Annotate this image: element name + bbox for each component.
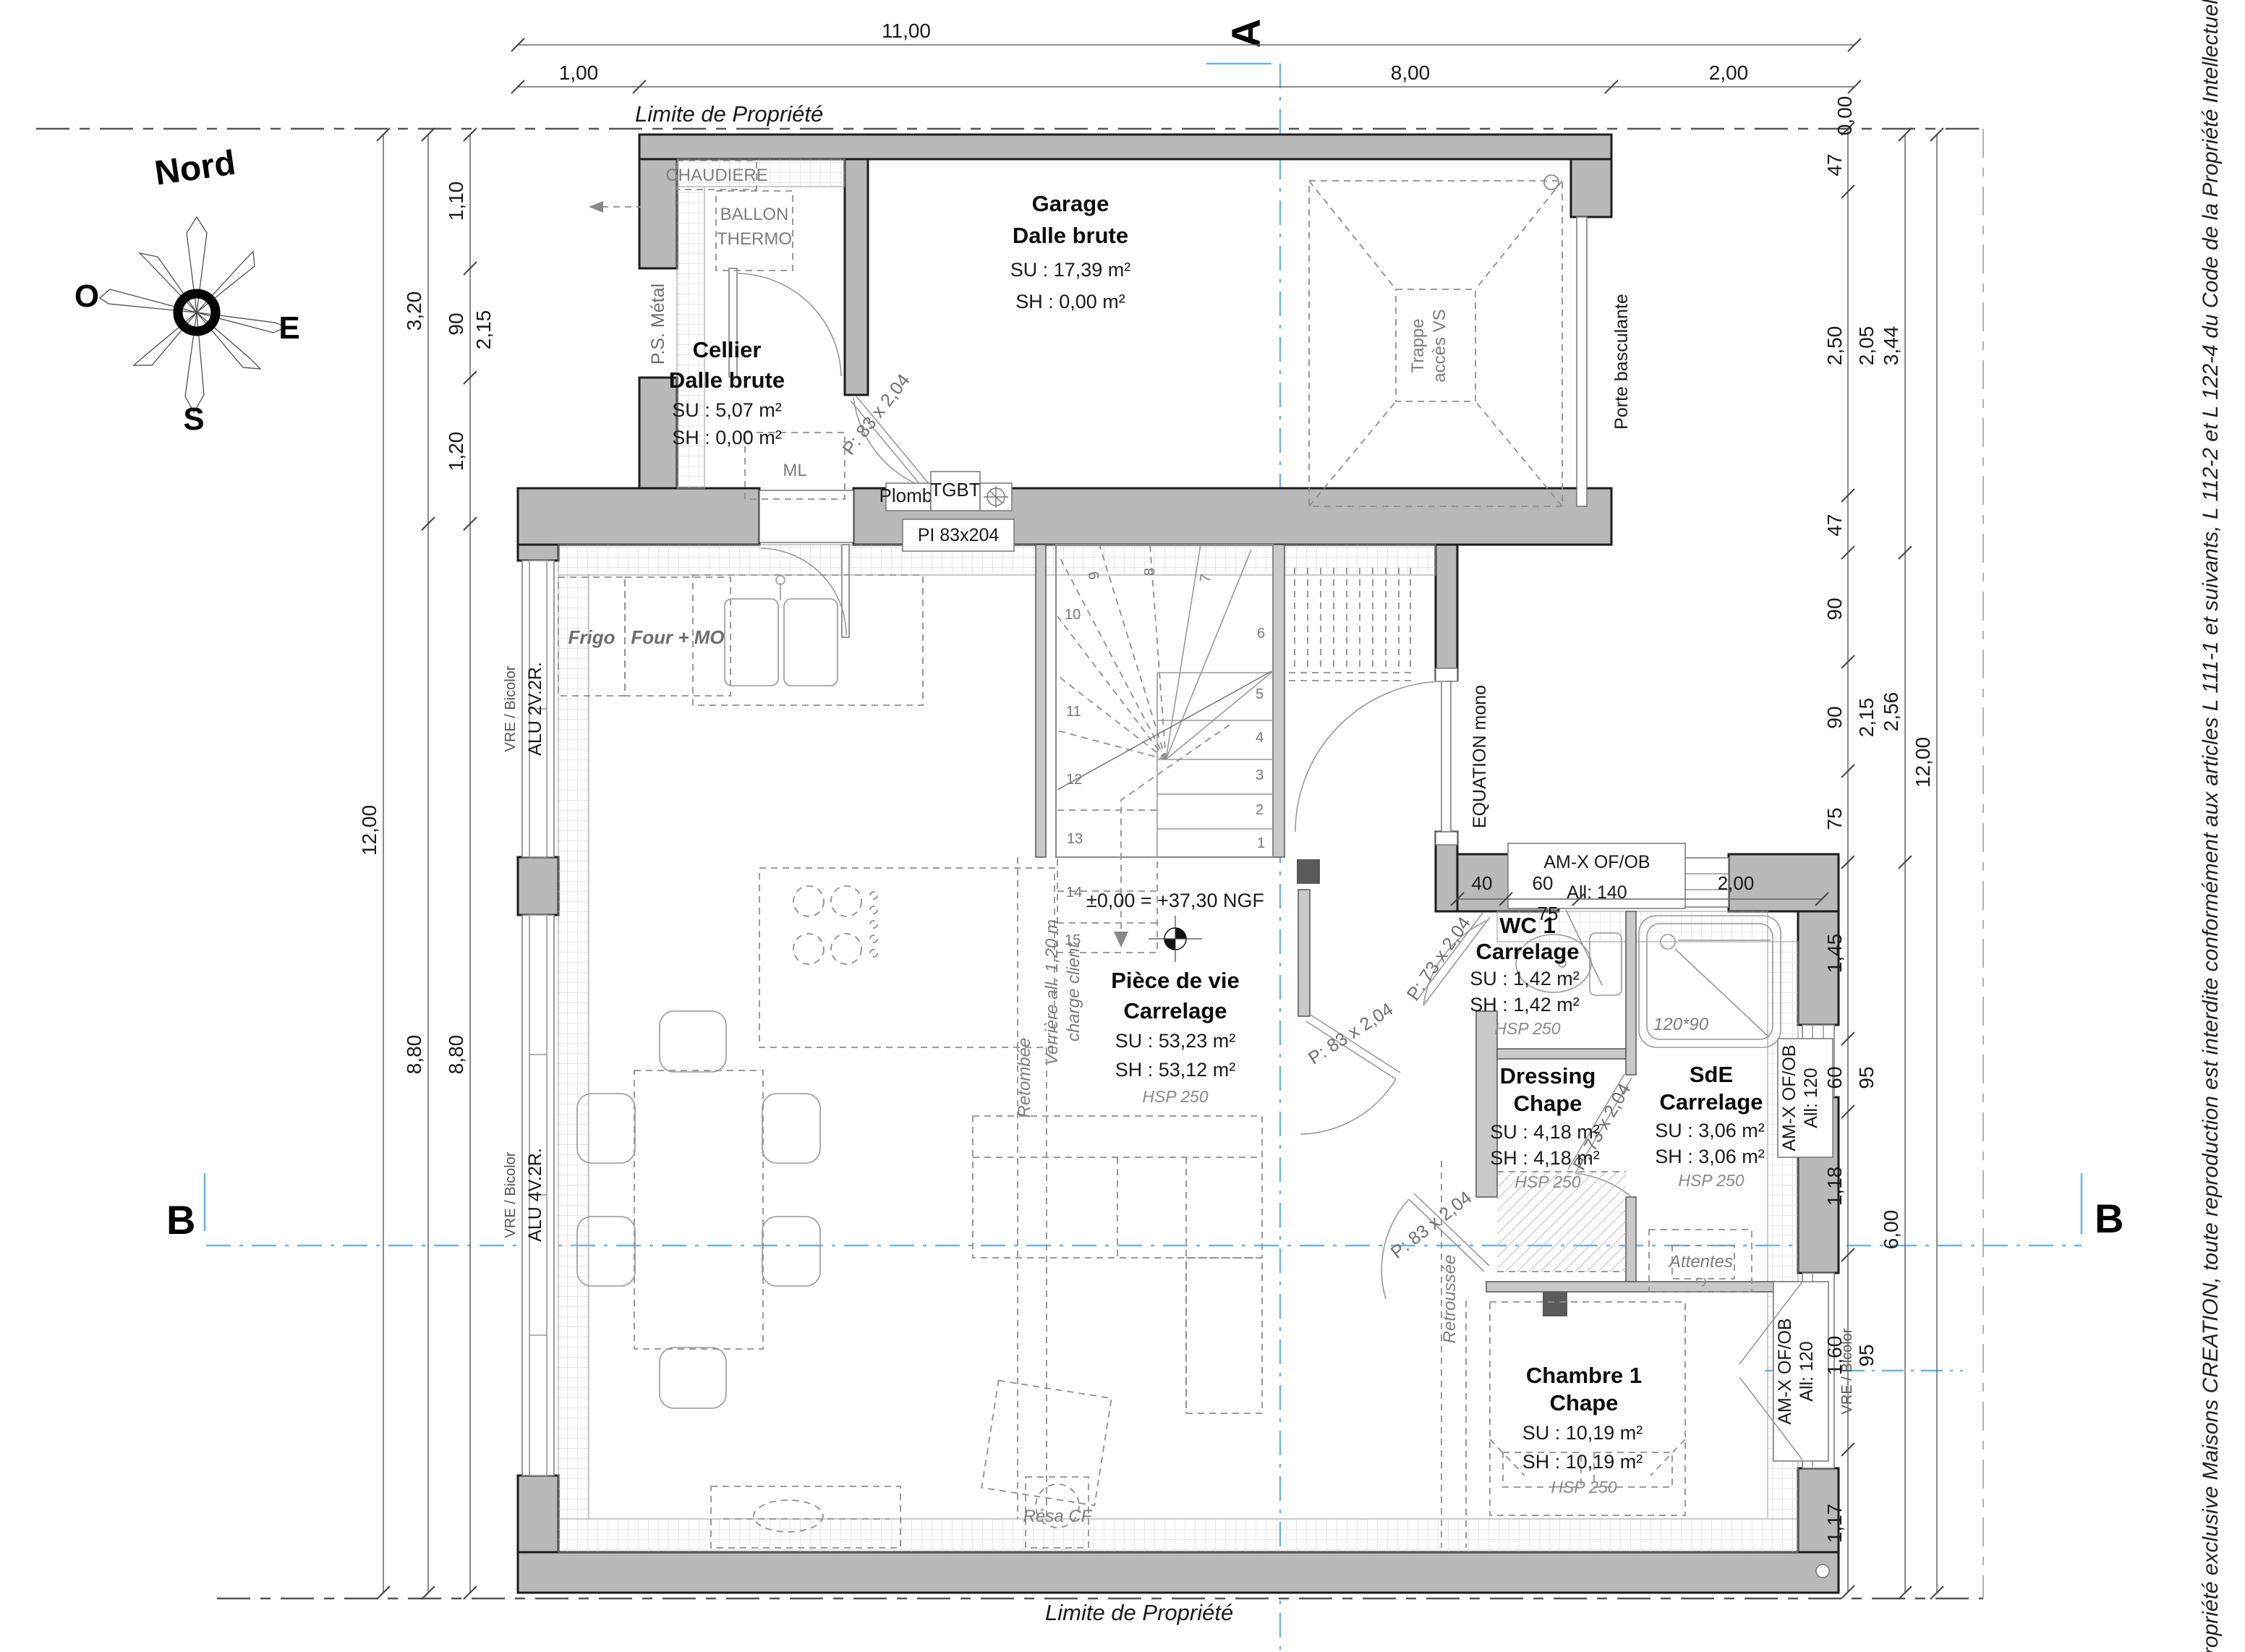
ballon-label: BALLON [720,205,789,224]
copyright-notice: Propriété exclusive Maisons CREATION, to… [2199,0,2223,1652]
svg-text:60: 60 [1823,1066,1846,1089]
living-furniture: Résa CF Verrière all. 1,20 m charge clie… [577,857,1466,1548]
svg-text:8: 8 [1142,568,1158,576]
svg-text:3,44: 3,44 [1880,326,1902,366]
svg-text:Pièce de vie: Pièce de vie [1111,968,1240,993]
svg-text:Dalle brute: Dalle brute [669,367,785,393]
frigo-label: Frigo [568,626,615,648]
svg-text:SU : 5,07 m²: SU : 5,07 m² [672,399,782,421]
ballon-label: THERMO [717,229,792,249]
svg-text:SH : 1,42 m²: SH : 1,42 m² [1470,994,1580,1016]
svg-text:SU : 4,18 m²: SU : 4,18 m² [1490,1121,1600,1143]
svg-text:charge client: charge client [1064,942,1083,1042]
dimensions: 11,00 1,00 8,00 2,00 12,00 3,20 8,80 1,1… [358,20,1943,1599]
svg-text:12,00: 12,00 [1912,737,1934,788]
svg-text:6,00: 6,00 [1880,1210,1902,1250]
svg-text:1,20: 1,20 [445,432,467,472]
svg-text:5: 5 [1256,686,1264,702]
svg-text:2,00: 2,00 [1718,872,1755,894]
gutter-circle-bottom [1816,1564,1829,1578]
svg-text:10: 10 [1065,607,1081,623]
svg-text:1,10: 1,10 [445,182,467,221]
door-label: EQUATION mono [1470,685,1490,828]
svg-text:8,80: 8,80 [445,1035,467,1075]
door-label: P: 73 x 2,04 [1403,914,1475,1004]
trappe-label: Trappe [1408,318,1428,372]
door-label: PI 83x204 [918,525,1000,545]
svg-text:SdE: SdE [1690,1062,1733,1087]
compass-south-label: S [183,401,204,437]
svg-text:2,05: 2,05 [1855,326,1878,366]
kitchen: Frigo Four + MO [558,575,1055,1047]
room-label-sde: SdE Carrelage SU : 3,06 m² SH : 3,06 m² … [1655,1062,1765,1190]
svg-text:95: 95 [1855,1344,1878,1366]
tremie-hatch [1289,568,1414,681]
svg-text:6: 6 [1257,626,1265,642]
svg-text:Chambre 1: Chambre 1 [1526,1363,1642,1388]
post [1297,859,1320,884]
window-label: ALU 4V.2R. [525,1148,545,1242]
four-label: Four + MO [631,626,724,648]
svg-text:Chape: Chape [1514,1091,1582,1116]
svg-text:13: 13 [1067,831,1083,847]
svg-text:HSP 250: HSP 250 [1551,1478,1616,1496]
svg-text:8,00: 8,00 [1391,61,1431,84]
room-label-chambre1: Chambre 1 Chape SU : 10,19 m² SH : 10,19… [1522,1363,1643,1496]
svg-text:HSP 250: HSP 250 [1494,1019,1560,1038]
room-label-piece-de-vie: ±0,00 = +37,30 NGF Pièce de vie Carrelag… [1086,890,1264,1106]
svg-text:3,20: 3,20 [403,291,425,331]
gutter-circle-top [1544,175,1559,190]
resa-cf-label: Résa CF [1023,1507,1093,1526]
window-label: AM-X OF/OB [1775,1318,1795,1424]
svg-text:1,45: 1,45 [1823,934,1846,974]
section-b-marker-left: B [166,1197,195,1243]
sofa [973,1116,1262,1413]
window-sde: AM-X OF/OB All: 120 [1778,1025,1834,1157]
plomb-label: Plomb. [879,485,938,506]
svg-text:90: 90 [445,312,467,335]
svg-text:95: 95 [1855,1066,1878,1089]
window-alu4v: VRE / Bicolor ALU 4V.2R. [503,915,554,1476]
floor-plan-canvas: Limite de Propriété Limite de Propriété … [0,0,2245,1652]
svg-text:SH : 0,00 m²: SH : 0,00 m² [1015,291,1125,312]
svg-text:75: 75 [1823,807,1846,830]
svg-text:90: 90 [1823,597,1846,620]
svg-text:Dressing: Dressing [1500,1063,1596,1089]
garage-door: Porte basculante [1577,217,1632,506]
window-label: All: 120 [1801,1068,1821,1128]
post [1543,1292,1567,1316]
svg-text:2: 2 [1256,802,1264,818]
svg-text:HSP 250: HSP 250 [1678,1171,1744,1190]
svg-text:HSP 250: HSP 250 [1515,1172,1580,1191]
svg-text:47: 47 [1823,514,1846,536]
svg-text:11,00: 11,00 [882,20,931,42]
trappe-label: accès VS [1430,309,1449,382]
svg-text:Chape: Chape [1550,1390,1619,1415]
svg-text:2,50: 2,50 [1823,326,1846,366]
svg-text:Garage: Garage [1032,191,1109,216]
door-label: P.S. Métal [648,284,668,365]
svg-text:SH : 10,19 m²: SH : 10,19 m² [1522,1451,1643,1473]
svg-text:2,56: 2,56 [1880,692,1902,732]
svg-text:Carrelage: Carrelage [1123,998,1227,1023]
svg-text:75: 75 [1538,903,1559,924]
door-chambre: P: 83 x 2,04 [1381,1188,1489,1299]
svg-text:Cellier: Cellier [693,337,762,362]
window-label: AM-X OF/OB [1779,1044,1799,1151]
svg-text:SU : 17,39 m²: SU : 17,39 m² [1010,259,1131,281]
svg-text:SH : 4,18 m²: SH : 4,18 m² [1490,1147,1600,1169]
svg-text:Verrière all. 1,20 m: Verrière all. 1,20 m [1042,919,1062,1065]
property-label-top: Limite de Propriété [635,101,823,127]
window-label: All: 140 [1567,882,1627,903]
svg-text:2,15: 2,15 [1855,698,1878,738]
svg-text:1,17: 1,17 [1823,1504,1846,1544]
property-label-bottom: Limite de Propriété [1045,1600,1233,1625]
compass-north-label: Nord [153,144,238,193]
window-label: All: 120 [1797,1341,1817,1401]
window-alu2v: VRE / Bicolor ALU 2V.2R. [503,561,554,857]
svg-text:Carrelage: Carrelage [1659,1089,1763,1115]
svg-text:2,15: 2,15 [472,310,495,350]
svg-text:4: 4 [1256,730,1264,746]
window-label: VRE / Bicolor [503,1151,519,1238]
svg-text:SU : 10,19 m²: SU : 10,19 m² [1522,1422,1643,1444]
svg-text:40: 40 [1472,872,1493,894]
svg-text:12: 12 [1066,772,1082,788]
trappe-vs: Trappe accès VS [1309,181,1562,506]
svg-text:HSP 250: HSP 250 [1142,1087,1208,1106]
svg-text:1,18: 1,18 [1823,1167,1846,1206]
svg-text:1,00: 1,00 [559,61,599,84]
svg-text:11: 11 [1066,704,1081,720]
chaudiere-label: CHAUDIERE [665,166,767,185]
retroussee-label: Retroussée [1440,1255,1460,1344]
svg-text:3: 3 [1256,767,1264,783]
svg-text:SH : 53,12 m²: SH : 53,12 m² [1115,1059,1236,1081]
svg-text:12,00: 12,00 [358,805,380,856]
svg-text:14: 14 [1066,885,1082,900]
svg-text:0,00: 0,00 [1833,96,1856,136]
door-living-hall: P: 83 x 2,04 [1300,999,1400,1134]
attentes-label: Attentes [1668,1252,1733,1272]
door-entrance-equation: EQUATION mono [1295,668,1490,845]
svg-text:Carrelage: Carrelage [1475,939,1579,964]
section-a-marker: A [1223,19,1269,48]
ml-label: ML [783,461,806,480]
tgbt-label: TGBT [930,479,980,501]
compass-rose: Nord O E S [74,144,300,437]
ngf-level: ±0,00 = +37,30 NGF [1086,890,1264,911]
svg-text:47: 47 [1823,153,1846,176]
svg-text:SU : 1,42 m²: SU : 1,42 m² [1470,968,1580,989]
svg-text:2,00: 2,00 [1709,61,1749,84]
compass-east-label: E [278,310,299,346]
room-label-garage: Garage Dalle brute SU : 17,39 m² SH : 0,… [1010,191,1131,312]
window-label: AM-X OF/OB [1543,852,1650,872]
svg-text:90: 90 [1823,706,1846,728]
svg-text:60: 60 [1533,872,1554,894]
svg-text:SU : 53,23 m²: SU : 53,23 m² [1115,1030,1236,1052]
svg-text:Dalle brute: Dalle brute [1013,223,1128,248]
flue-arrow [589,201,603,213]
hob [793,886,877,964]
section-b-marker-right: B [2095,1196,2123,1241]
svg-text:1,60: 1,60 [1823,1336,1846,1376]
garage-door-label: Porte basculante [1611,294,1632,430]
window-label: VRE / Bicolor [503,665,519,752]
svg-text:8,80: 8,80 [403,1035,425,1075]
window-label: ALU 2V.2R. [525,662,545,756]
svg-text:SU : 3,06 m²: SU : 3,06 m² [1655,1120,1765,1141]
door-label: P: 83 x 2,04 [1305,999,1397,1068]
shower-size-label: 120*90 [1653,1015,1709,1034]
svg-text:SH : 0,00 m²: SH : 0,00 m² [672,427,782,448]
compass-west-label: O [74,278,99,314]
svg-text:1: 1 [1257,835,1265,851]
svg-text:SH : 3,06 m²: SH : 3,06 m² [1655,1146,1765,1167]
retombee-label: Retombée [1015,1038,1034,1118]
